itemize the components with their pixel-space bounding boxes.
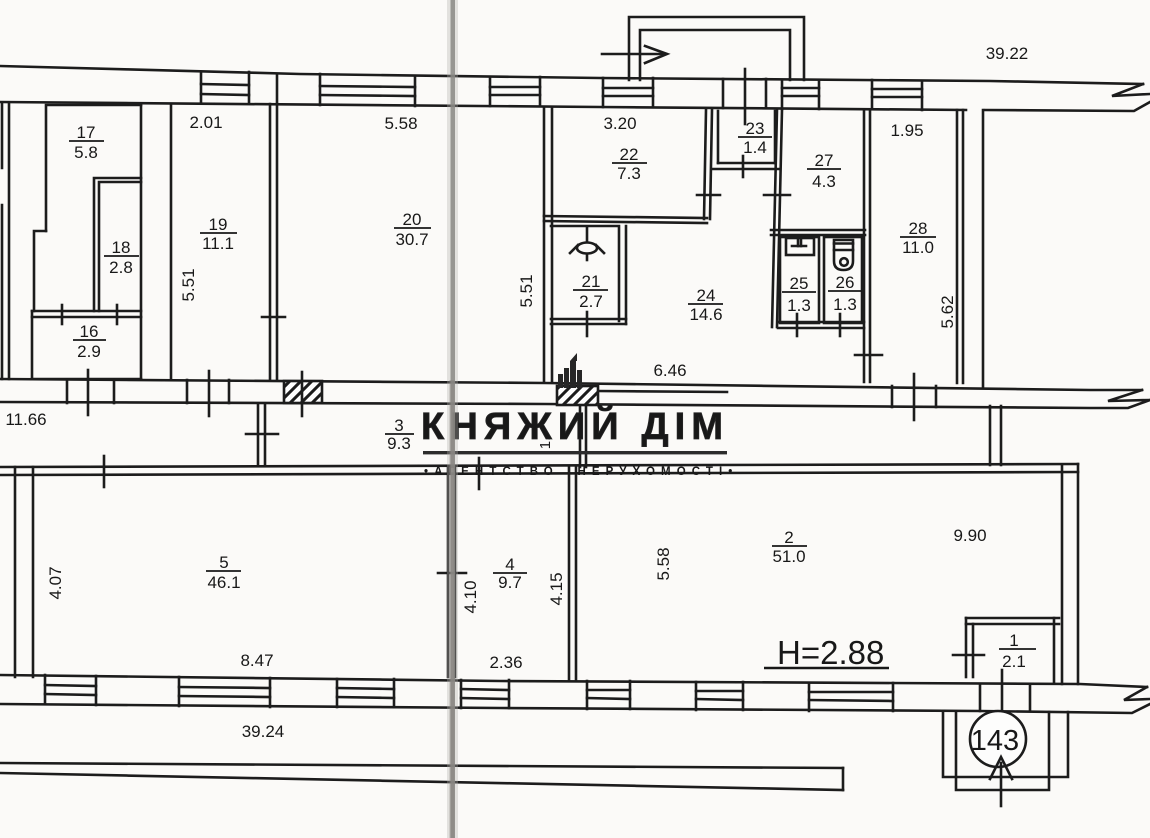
svg-text:27: 27 xyxy=(815,151,834,170)
svg-text:26: 26 xyxy=(836,273,855,292)
svg-text:1.95: 1.95 xyxy=(890,121,923,140)
svg-text:1.3: 1.3 xyxy=(833,295,857,314)
svg-text:3.20: 3.20 xyxy=(603,114,636,133)
svg-text:30.7: 30.7 xyxy=(395,230,428,249)
svg-text:24: 24 xyxy=(697,286,716,305)
svg-text:46.1: 46.1 xyxy=(207,573,240,592)
svg-text:9.90: 9.90 xyxy=(953,526,986,545)
svg-text:9.3: 9.3 xyxy=(387,434,411,453)
svg-text:4.10: 4.10 xyxy=(461,580,480,613)
svg-text:5.51: 5.51 xyxy=(179,268,198,301)
svg-text:5.51: 5.51 xyxy=(517,274,536,307)
svg-text:5.8: 5.8 xyxy=(74,143,98,162)
svg-text:5.58: 5.58 xyxy=(384,114,417,133)
svg-text:2: 2 xyxy=(784,528,793,547)
svg-text:4: 4 xyxy=(505,555,514,574)
svg-text:2.8: 2.8 xyxy=(109,258,133,277)
svg-text:H=2.88: H=2.88 xyxy=(777,634,884,671)
svg-text:39.24: 39.24 xyxy=(242,722,285,741)
svg-text:23: 23 xyxy=(746,119,765,138)
svg-text:1: 1 xyxy=(1009,631,1018,650)
svg-text:3: 3 xyxy=(394,416,403,435)
svg-text:1.4: 1.4 xyxy=(743,138,767,157)
svg-text:14.6: 14.6 xyxy=(689,305,722,324)
svg-text:11.0: 11.0 xyxy=(902,238,934,257)
svg-text:20: 20 xyxy=(403,210,422,229)
svg-text:28: 28 xyxy=(909,219,928,238)
svg-text:5: 5 xyxy=(219,553,228,572)
svg-text:2.01: 2.01 xyxy=(189,113,222,132)
svg-text:6.46: 6.46 xyxy=(653,361,686,380)
svg-text:22: 22 xyxy=(620,145,639,164)
svg-text:9.7: 9.7 xyxy=(498,573,522,592)
svg-text:25: 25 xyxy=(790,274,809,293)
svg-text:4.3: 4.3 xyxy=(812,172,836,191)
svg-text:2.1: 2.1 xyxy=(1002,652,1026,671)
svg-text:4.07: 4.07 xyxy=(46,566,65,599)
svg-text:143: 143 xyxy=(971,725,1019,757)
svg-text:18: 18 xyxy=(112,238,131,257)
svg-text:21: 21 xyxy=(582,272,601,291)
svg-text:1.3: 1.3 xyxy=(787,296,811,315)
svg-text:51.0: 51.0 xyxy=(772,547,805,566)
svg-text:17: 17 xyxy=(77,123,96,142)
svg-text:11.66: 11.66 xyxy=(5,410,46,429)
svg-text:2.9: 2.9 xyxy=(77,342,101,361)
svg-text:5.62: 5.62 xyxy=(938,295,957,328)
svg-text:2.7: 2.7 xyxy=(579,292,603,311)
svg-text:39.22: 39.22 xyxy=(986,44,1029,63)
svg-text:16: 16 xyxy=(80,322,99,341)
svg-text:2.36: 2.36 xyxy=(489,653,522,672)
svg-text:7.3: 7.3 xyxy=(617,164,641,183)
svg-text:11.1: 11.1 xyxy=(202,234,234,253)
svg-text:19: 19 xyxy=(209,215,228,234)
svg-text:4.15: 4.15 xyxy=(547,572,566,605)
svg-text:8.47: 8.47 xyxy=(240,651,273,670)
svg-text:5.58: 5.58 xyxy=(654,547,673,580)
svg-text:•АГЕНТСТВО НЕРУХОМОСТІ•: •АГЕНТСТВО НЕРУХОМОСТІ• xyxy=(424,466,738,478)
svg-text:КНЯЖИЙ ДІМ: КНЯЖИЙ ДІМ xyxy=(421,403,726,448)
